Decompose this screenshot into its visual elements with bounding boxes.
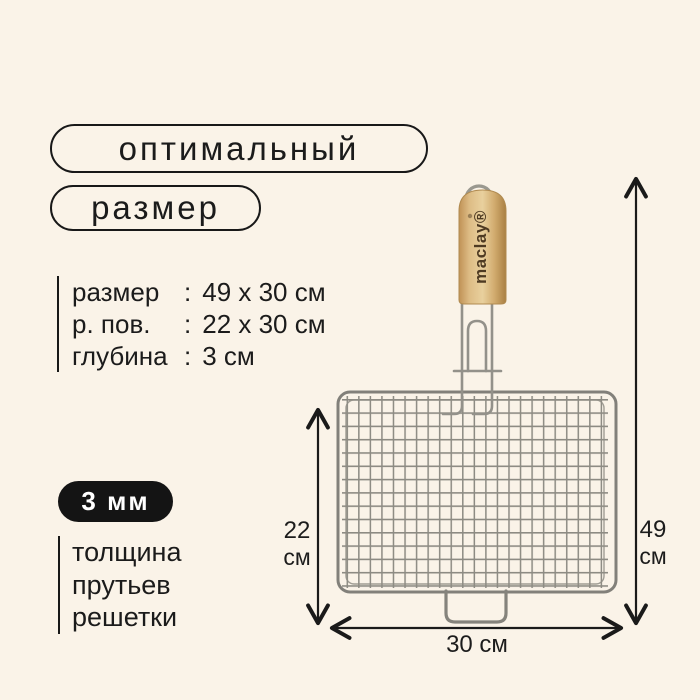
dim-value: 22 [272, 517, 322, 544]
dim-unit: см [272, 544, 322, 571]
spec-colon: : [184, 340, 191, 372]
thickness-badge-label: 3 мм [81, 486, 149, 517]
grate-mesh [338, 392, 616, 592]
dim-label-width-30: 30 см [397, 631, 557, 658]
spec-colon: : [184, 308, 191, 340]
spec-label: глубина [72, 340, 184, 372]
spec-value: 22 x 30 см [202, 308, 325, 340]
dim-unit: см [631, 543, 675, 570]
wooden-handle: maclay® [459, 190, 506, 304]
dim-value: 49 [631, 516, 675, 543]
thickness-caption: толщина прутьев решетки [58, 536, 181, 634]
brand-text: maclay® [471, 210, 490, 284]
spec-value: 49 x 30 см [202, 276, 325, 308]
dim-label-total-height-49: 49 см [631, 516, 675, 570]
header-pill-size-label: размер [91, 189, 220, 227]
thickness-caption-line: решетки [72, 601, 181, 634]
thickness-badge: 3 мм [58, 481, 173, 522]
header-pill-optimal-label: оптимальный [119, 130, 360, 168]
spec-label: р. пов. [72, 308, 184, 340]
dim-value: 30 см [446, 631, 508, 658]
thickness-caption-line: прутьев [72, 569, 181, 602]
header-pill-optimal: оптимальный [50, 124, 428, 173]
grate-foot [446, 591, 506, 622]
spec-row-depth: глубина : 3 см [72, 340, 326, 372]
spec-row-work-surface: р. пов. : 22 x 30 см [72, 308, 326, 340]
spec-label: размер [72, 276, 184, 308]
thickness-caption-line: толщина [72, 536, 181, 569]
spec-row-size: размер : 49 x 30 см [72, 276, 326, 308]
spec-value: 3 см [202, 340, 255, 372]
spec-colon: : [184, 276, 191, 308]
specs-list: размер : 49 x 30 см р. пов. : 22 x 30 см… [57, 276, 326, 372]
header-pill-size: размер [50, 185, 261, 231]
dim-label-height-22: 22 см [272, 517, 322, 571]
